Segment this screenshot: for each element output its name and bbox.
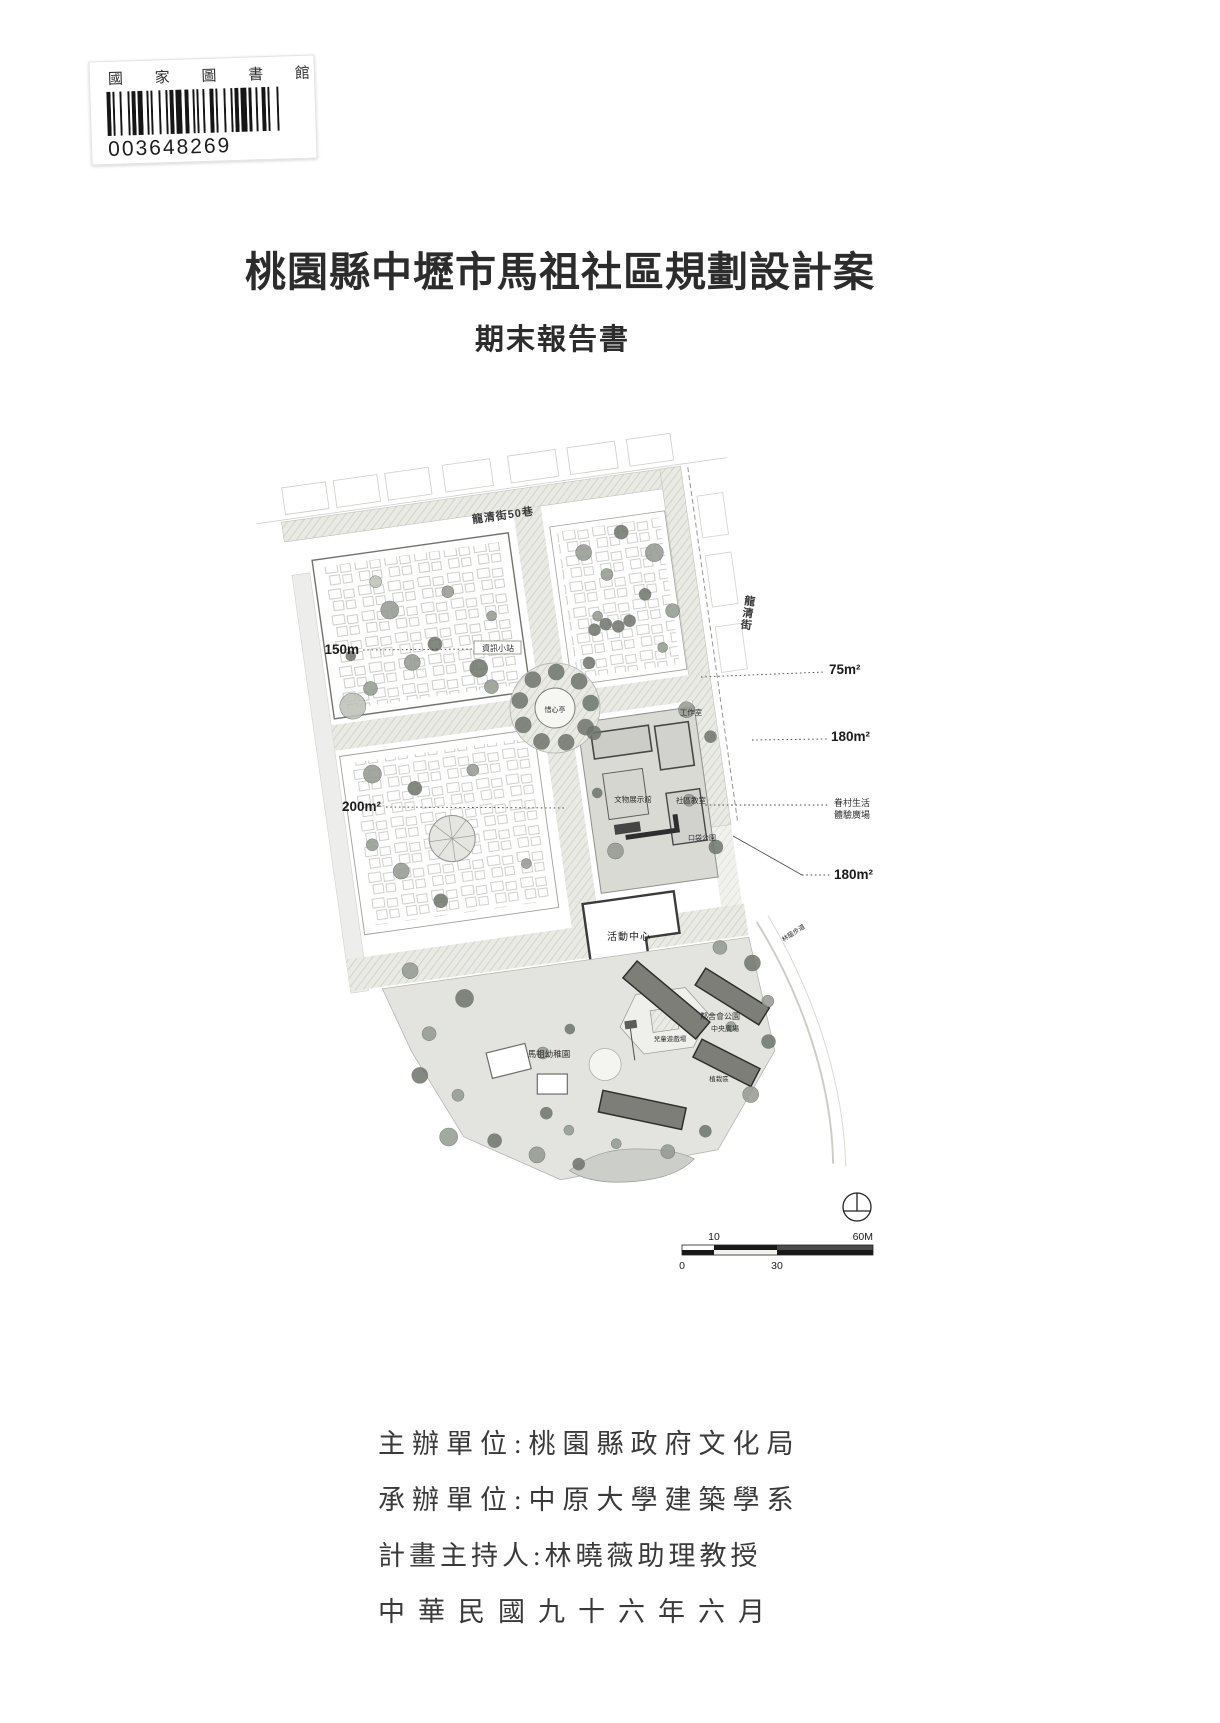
dim-180m2-b: 180m² <box>834 867 874 882</box>
dim-200m2: 200m² <box>342 799 382 814</box>
credit-organizer: 主辦單位:桃園縣政府文化局 <box>378 1416 801 1472</box>
label-info-station: 資訊小站 <box>482 643 514 653</box>
credit-executor: 承辦單位:中原大學建築學系 <box>378 1472 801 1528</box>
tree-icon <box>439 1127 459 1147</box>
label-community-classroom: 社區教室 <box>676 795 706 805</box>
north-compass-icon <box>843 1193 871 1221</box>
scale-10: 10 <box>708 1231 720 1243</box>
label-pocket-park: 口袋公園 <box>688 833 716 842</box>
callout-village-life-2: 體驗廣場 <box>834 809 870 820</box>
label-green-walk: 林蔭步道 <box>780 922 807 944</box>
dim-180m2-a: 180m² <box>831 729 871 744</box>
scale-60m: 60M <box>853 1231 873 1243</box>
scale-0: 0 <box>679 1260 685 1272</box>
label-central-plaza: 中央廣場 <box>711 1024 739 1033</box>
callout-village-life-1: 眷村生活 <box>834 797 870 808</box>
label-exhibit-hall: 文物展示館 <box>614 794 652 804</box>
label-kindergarten: 馬祖幼稚園 <box>528 1049 571 1059</box>
label-pavilion: 惜心亭 <box>545 705 566 714</box>
label-children-playground: 兒童遊戲場 <box>654 1034 687 1043</box>
scale-30: 30 <box>771 1260 783 1272</box>
library-name-label: 國 家 圖 書 館 <box>108 62 305 89</box>
credit-director: 計畫主持人:林曉薇助理教授 <box>378 1528 801 1584</box>
dim-75m2: 75m² <box>829 662 861 677</box>
dim-150m: 150m <box>324 642 359 657</box>
credits-block: 主辦單位:桃園縣政府文化局 承辦單位:中原大學建築學系 計畫主持人:林曉薇助理教… <box>378 1416 801 1640</box>
street-label-right: 龍清街 <box>739 593 758 632</box>
label-activity-center: 活動中心 <box>607 930 651 943</box>
barcode-number: 003648269 <box>108 132 307 162</box>
report-subtitle: 期末報告書 <box>0 316 1105 358</box>
scale-bar: 10 60M 0 30 <box>679 1231 873 1272</box>
credit-date: 中華民國九十六年六月 <box>378 1584 801 1640</box>
site-plan-map: 150m 200m² 75m² 180m² 眷村生活 體驗廣場 180m² 龍清… <box>255 428 905 1283</box>
label-workshop: 工作室 <box>680 707 703 717</box>
report-title: 桃園縣中壢市馬祖社區規劃設計案 <box>0 238 1120 298</box>
library-barcode-sticker: 國 家 圖 書 館 003648269 <box>88 54 317 165</box>
site-geometry <box>255 428 849 1236</box>
label-planting-area: 植栽區 <box>709 1074 729 1083</box>
report-cover-page: 國 家 圖 書 館 003648269 桃園縣中壢市馬祖社區規劃設計案 期末報告… <box>0 0 1220 1723</box>
label-neighborhood-park: 鄰舍會公園 <box>700 1011 740 1021</box>
barcode <box>106 86 299 136</box>
